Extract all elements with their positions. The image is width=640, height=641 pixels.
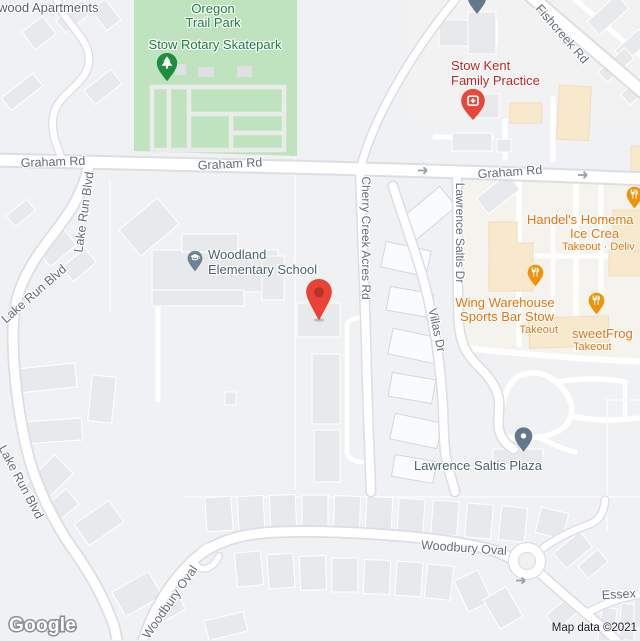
- poi-label-skatepark[interactable]: Stow Rotary Skatepark: [149, 37, 282, 52]
- poi-label-plaza[interactable]: Lawrence Saltis Plaza: [414, 458, 542, 473]
- building: [299, 556, 326, 591]
- building: [225, 392, 236, 405]
- building: [88, 375, 117, 423]
- building: [269, 495, 296, 530]
- building: [498, 506, 527, 543]
- building: [333, 496, 360, 531]
- plaza-pin[interactable]: [514, 426, 533, 453]
- poi-label-wing-line2[interactable]: Sports Bar Stow: [460, 309, 554, 324]
- poi-label-park-line2[interactable]: Trail Park: [185, 15, 240, 30]
- clipped-pin[interactable]: [467, 0, 487, 15]
- building: [314, 430, 340, 482]
- destination-marker[interactable]: [305, 278, 333, 322]
- google-logo-text: Google: [9, 615, 76, 636]
- building: [198, 67, 214, 77]
- medical-pin[interactable]: [460, 88, 486, 121]
- building: [205, 496, 233, 532]
- road-label-essex: Essex C: [601, 586, 640, 602]
- building: [510, 103, 542, 123]
- building: [312, 354, 340, 424]
- parking-lane: [556, 379, 625, 382]
- marker-hole: [314, 287, 324, 297]
- poi-label-school-line1[interactable]: Woodland: [208, 247, 266, 262]
- building: [557, 85, 592, 141]
- park-pin[interactable]: [156, 52, 178, 82]
- road-label-cherry-creek: Cherry Creek Acres Rd: [359, 176, 373, 299]
- google-logo[interactable]: Google: [6, 612, 82, 638]
- building: [237, 495, 265, 530]
- poi-label-wing-line1[interactable]: Wing Warehouse: [455, 295, 554, 310]
- dot-icon: [521, 433, 526, 438]
- poi-label-handels-line1[interactable]: Handel's Homema: [527, 212, 634, 227]
- map-viewport[interactable]: { "branding": { "logo": "Google" }, "att…: [0, 0, 640, 640]
- building: [152, 290, 244, 306]
- building: [465, 503, 494, 539]
- poi-label-sweetfrog[interactable]: sweetFrog: [572, 326, 633, 341]
- restaurant-pin-handels[interactable]: [626, 186, 640, 209]
- road-label-graham-1: Graham Rd: [20, 154, 85, 170]
- building: [395, 561, 423, 597]
- map-attribution: Map data ©2021: [552, 622, 637, 634]
- poi-label-medical-line2[interactable]: Family Practice: [451, 73, 540, 88]
- building: [397, 498, 425, 534]
- building: [332, 558, 358, 592]
- building: [497, 139, 511, 152]
- poi-label-wing-services: Takeout: [519, 324, 558, 336]
- building: [234, 551, 263, 588]
- building: [468, 12, 496, 54]
- restaurant-pin-wing-warehouse[interactable]: [527, 264, 544, 287]
- poi-label-park-line1[interactable]: Oregon: [191, 1, 234, 16]
- building: [631, 146, 640, 174]
- building: [267, 553, 295, 589]
- poi-label-school-line2[interactable]: Elementary School: [208, 262, 317, 277]
- building: [365, 496, 393, 531]
- building: [424, 564, 453, 601]
- building: [452, 133, 492, 151]
- poi-label-apartments[interactable]: wood Apartments: [0, 0, 98, 15]
- building: [237, 66, 252, 77]
- poi-label-handels-line2[interactable]: Ice Crea: [570, 226, 619, 241]
- poi-label-sweetfrog-services: Takeout: [573, 341, 612, 353]
- school-pin[interactable]: [187, 248, 203, 274]
- building: [431, 500, 459, 536]
- roundabout: [509, 543, 546, 580]
- building: [609, 251, 640, 276]
- building: [302, 495, 328, 529]
- poi-label-handels-services: Takeout · Deliv: [562, 241, 635, 253]
- restaurant-pin-sweetfrog[interactable]: [588, 292, 605, 315]
- building: [363, 560, 390, 595]
- poi-label-medical-line1[interactable]: Stow Kent: [451, 58, 510, 73]
- road-label-lawrence-saltis: Lawrence Saltis Dr: [453, 183, 467, 284]
